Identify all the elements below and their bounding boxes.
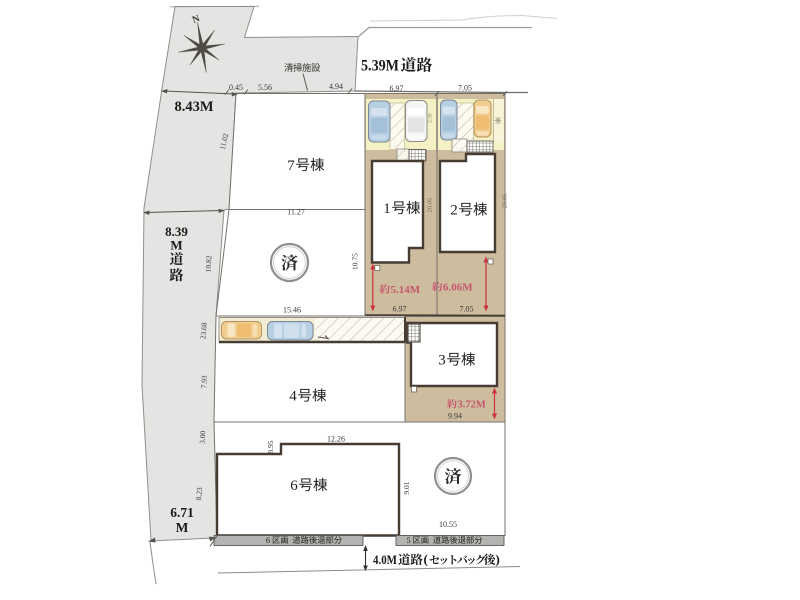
- svg-text:M: M: [170, 238, 182, 253]
- svg-text:8.23: 8.23: [194, 487, 204, 501]
- svg-text:3: 3: [438, 353, 446, 369]
- svg-text:10.75: 10.75: [351, 253, 360, 270]
- svg-text:7.05: 7.05: [460, 305, 474, 314]
- svg-text:5.56: 5.56: [258, 83, 272, 92]
- svg-text:7.93: 7.93: [199, 375, 209, 389]
- svg-text:2.50: 2.50: [428, 113, 434, 123]
- svg-text:M: M: [176, 520, 189, 535]
- svg-text:23.68: 23.68: [198, 322, 208, 340]
- svg-text:0.45: 0.45: [229, 83, 243, 92]
- svg-text:3.72M: 3.72M: [458, 400, 486, 411]
- svg-text:10.55: 10.55: [439, 520, 457, 529]
- svg-text:7: 7: [287, 158, 295, 174]
- svg-text:6.97: 6.97: [393, 305, 407, 314]
- svg-text:9.94: 9.94: [448, 412, 462, 421]
- svg-text:20.05: 20.05: [502, 194, 509, 209]
- svg-text:11.27: 11.27: [287, 208, 305, 217]
- svg-text:6.97: 6.97: [390, 84, 404, 93]
- svg-text:2: 2: [450, 203, 458, 219]
- svg-text:1: 1: [383, 201, 391, 217]
- svg-text:20.05: 20.05: [427, 198, 434, 213]
- svg-text:12.26: 12.26: [327, 435, 345, 444]
- svg-text:6.06M: 6.06M: [443, 282, 473, 294]
- svg-text:5: 5: [406, 535, 410, 545]
- svg-text:7.05: 7.05: [458, 84, 472, 93]
- svg-text:4.94: 4.94: [329, 82, 343, 91]
- svg-text:8.43M: 8.43M: [174, 99, 213, 115]
- svg-text:8.95: 8.95: [266, 440, 275, 453]
- svg-text:3.00: 3.00: [198, 430, 208, 444]
- svg-text:6: 6: [266, 535, 270, 545]
- svg-text:4.0M: 4.0M: [373, 553, 397, 567]
- svg-text:): ): [496, 552, 500, 567]
- svg-text:6.71: 6.71: [170, 505, 194, 520]
- svg-text:9.01: 9.01: [402, 481, 411, 494]
- svg-text:(: (: [424, 552, 428, 567]
- svg-text:5.14M: 5.14M: [391, 284, 421, 296]
- svg-text:4: 4: [289, 389, 297, 405]
- svg-text:10.82: 10.82: [204, 255, 214, 273]
- svg-text:5.39M: 5.39M: [361, 58, 399, 75]
- svg-text:6: 6: [290, 478, 298, 494]
- svg-text:15.46: 15.46: [283, 306, 301, 315]
